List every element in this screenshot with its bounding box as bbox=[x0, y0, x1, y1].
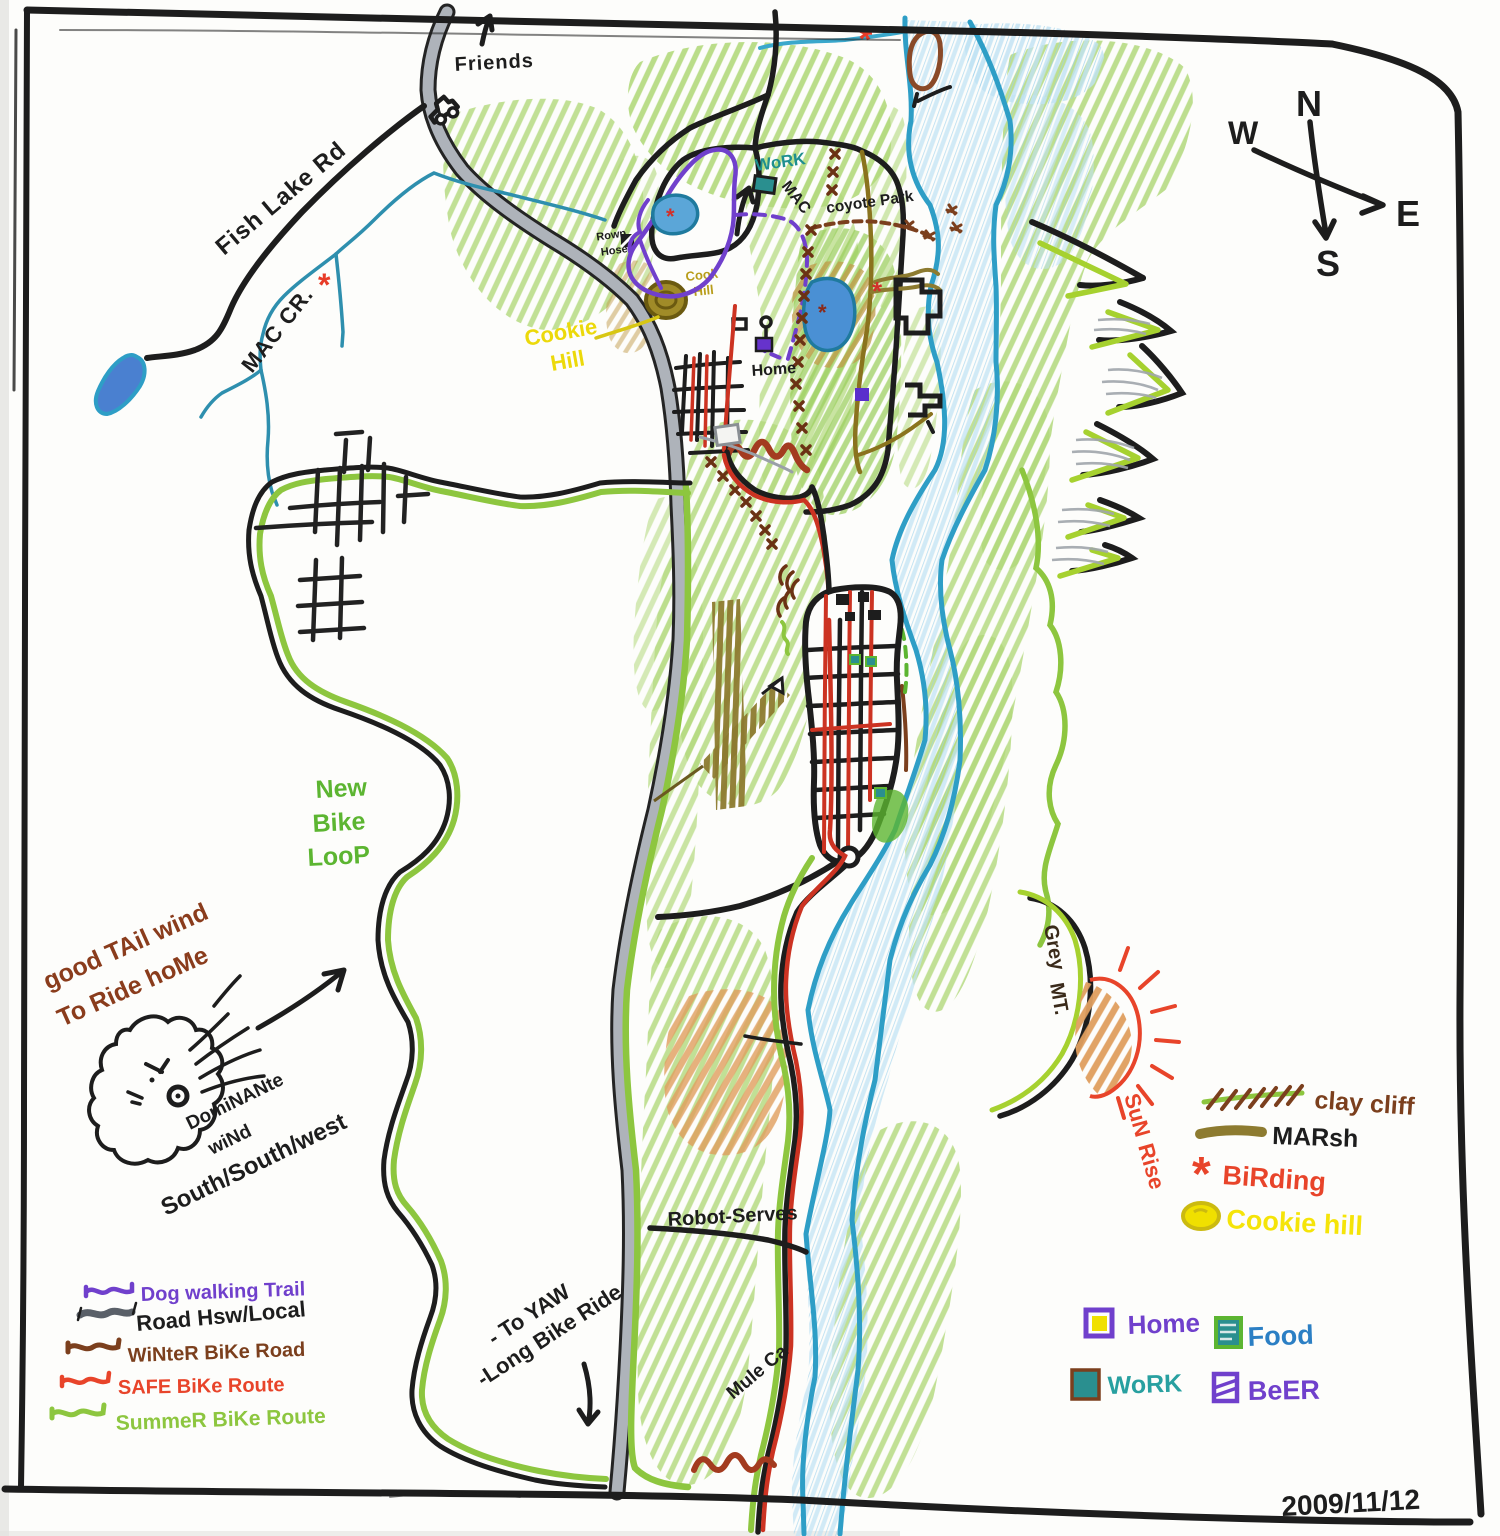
svg-text:*: * bbox=[666, 204, 675, 229]
svg-text:WoRK: WoRK bbox=[1107, 1369, 1182, 1400]
svg-text:New: New bbox=[315, 773, 368, 804]
svg-text:LooP: LooP bbox=[307, 841, 371, 872]
svg-text:BeER: BeER bbox=[1248, 1375, 1321, 1406]
svg-text:Home: Home bbox=[1127, 1307, 1200, 1340]
svg-text:MARsh: MARsh bbox=[1272, 1122, 1359, 1153]
svg-text:SAFE BiKe Route: SAFE BiKe Route bbox=[118, 1374, 285, 1399]
svg-text:N: N bbox=[1296, 83, 1322, 124]
svg-text:Home: Home bbox=[751, 360, 797, 380]
svg-text:*: * bbox=[818, 300, 827, 325]
svg-text:Bike: Bike bbox=[312, 807, 366, 838]
svg-text:S: S bbox=[1316, 243, 1340, 284]
svg-text:*: * bbox=[1192, 1148, 1211, 1201]
svg-text:E: E bbox=[1396, 193, 1420, 234]
svg-text:*: * bbox=[872, 276, 883, 306]
svg-text:Food: Food bbox=[1247, 1320, 1314, 1352]
svg-text:*: * bbox=[318, 267, 331, 303]
svg-text:Friends: Friends bbox=[454, 50, 534, 76]
svg-text:W: W bbox=[1228, 115, 1259, 151]
